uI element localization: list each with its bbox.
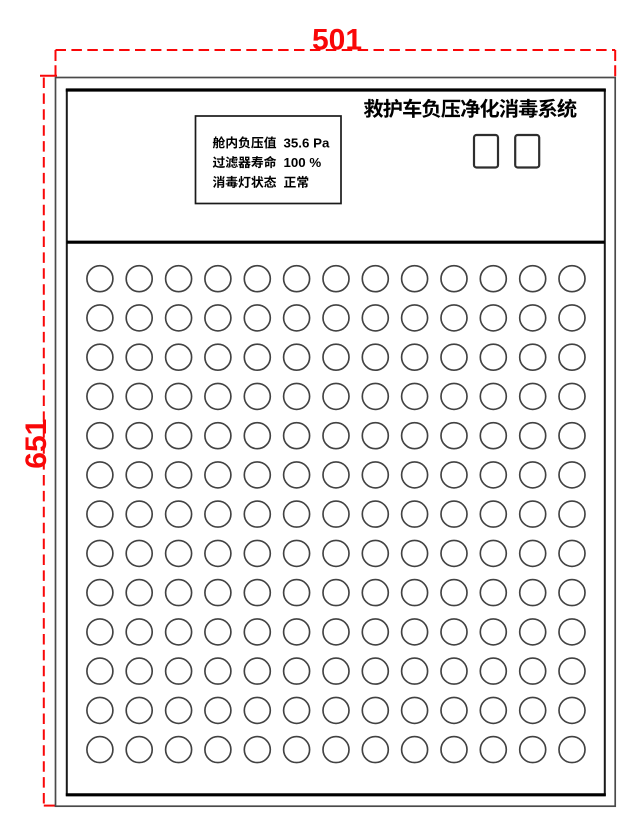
svg-text:651: 651 <box>20 419 53 469</box>
svg-text:35.6 Pa: 35.6 Pa <box>284 135 330 150</box>
svg-text:100 %: 100 % <box>284 155 322 170</box>
svg-text:501: 501 <box>312 23 362 56</box>
